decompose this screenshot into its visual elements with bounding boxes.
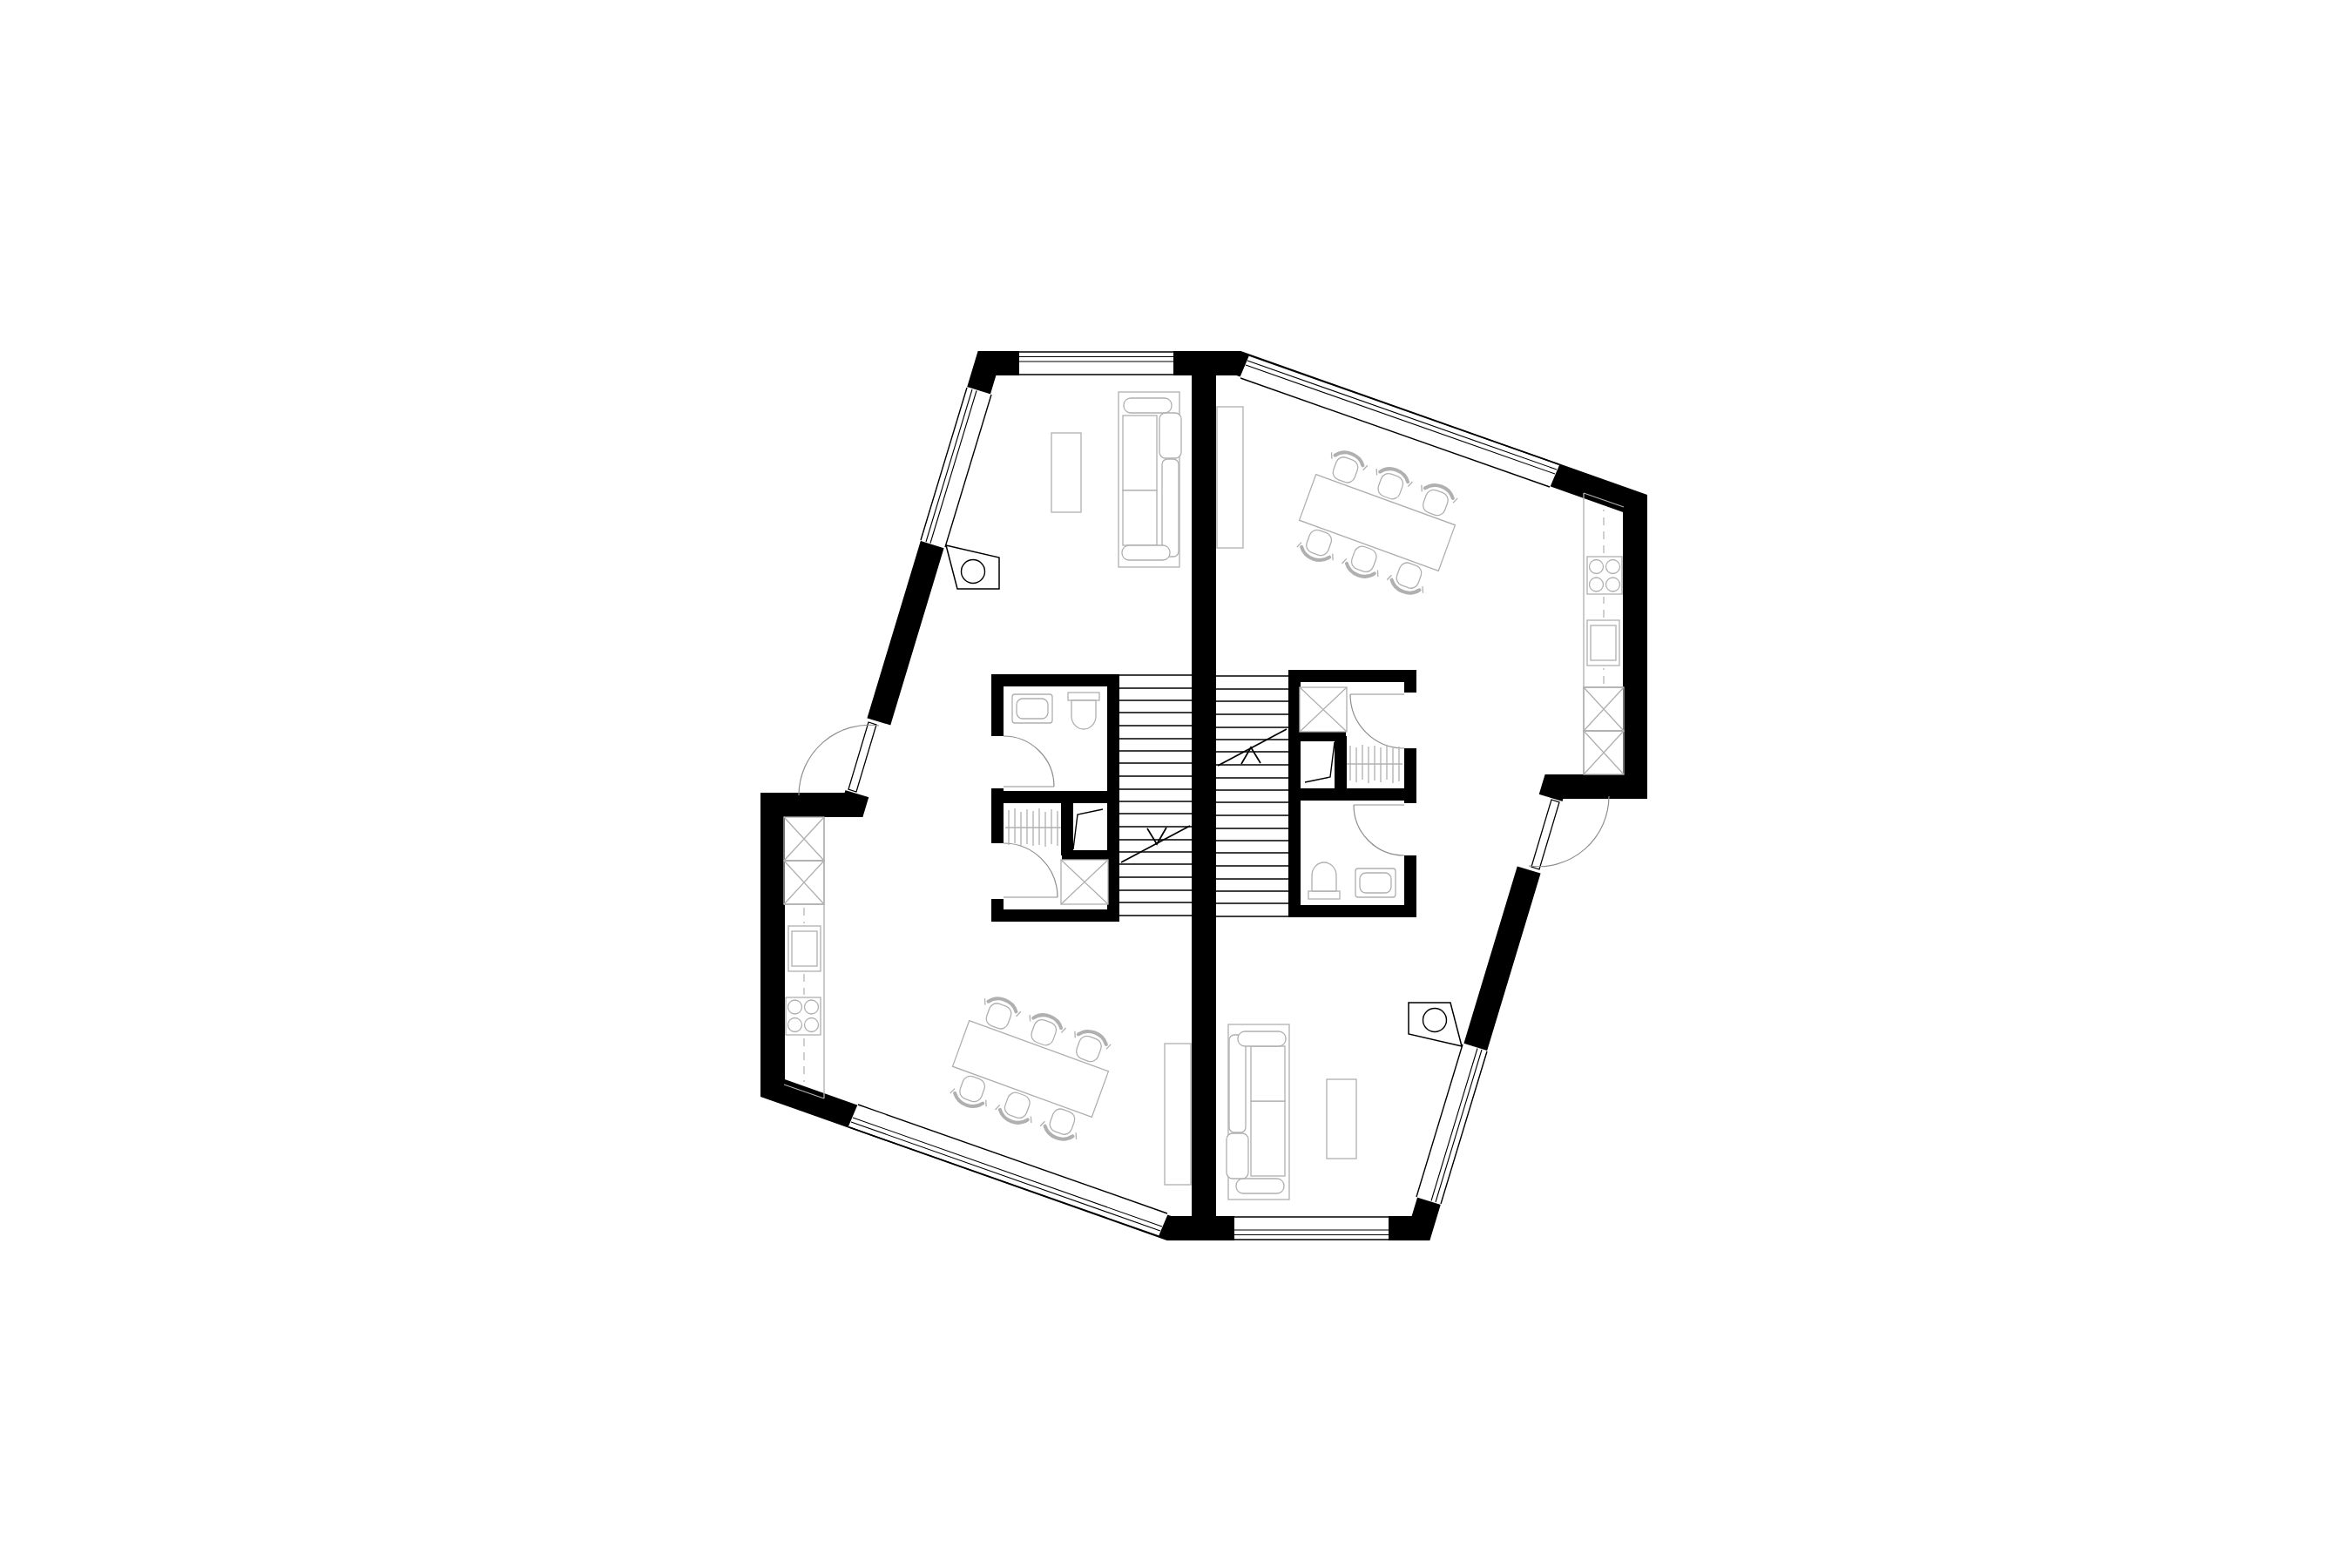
floor-plan-drawing: Floor plan — mirrored duplex, two apartm… xyxy=(0,0,2352,1568)
floor-plan-page: Floor plan — mirrored duplex, two apartm… xyxy=(0,0,2352,1568)
unit-b xyxy=(1204,355,1635,1241)
unit-a xyxy=(773,350,1204,1236)
